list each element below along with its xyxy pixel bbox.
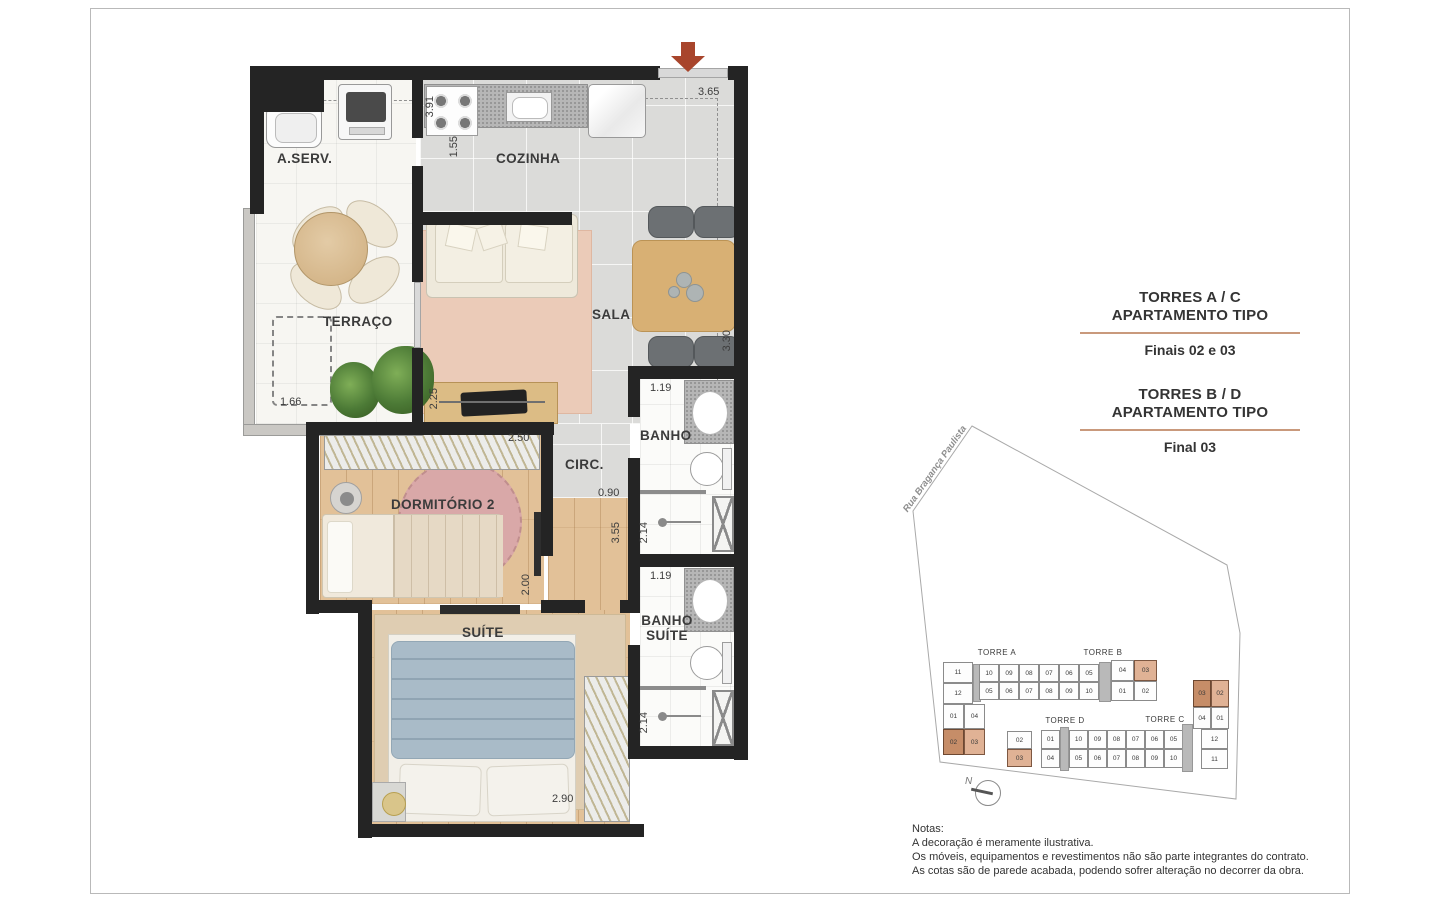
torre-c-highlight-units: 0302 <box>1193 680 1229 707</box>
terrace-railing <box>243 208 255 436</box>
notes-block: Notas: A decoração é meramente ilustrati… <box>912 822 1332 878</box>
site-unit-08: 08 <box>1126 749 1145 768</box>
wall <box>412 80 423 138</box>
notes-line: As cotas são de parede acabada, podendo … <box>912 864 1332 878</box>
title-torres-bd-line2: APARTAMENTO TIPO <box>1070 404 1310 422</box>
site-unit-11: 11 <box>1201 749 1228 769</box>
single-bed <box>322 514 502 598</box>
label-banho-suite: BANHO SUÍTE <box>638 613 696 643</box>
site-unit-05: 05 <box>1069 749 1088 768</box>
subtitle-final-03: Final 03 <box>1070 439 1310 455</box>
wall <box>628 379 640 417</box>
site-unit-04: 04 <box>1041 749 1060 768</box>
torre-a-highlight-units: 0203 <box>943 729 985 755</box>
label-suite: SUÍTE <box>462 625 504 640</box>
half-wall <box>640 490 706 494</box>
site-unit-06: 06 <box>1145 730 1164 749</box>
bedroom2-tv <box>534 512 541 576</box>
site-unit-03: 03 <box>1134 660 1157 681</box>
torre-d-label: TORRE D <box>1025 716 1105 725</box>
wall-shaft <box>250 66 324 112</box>
site-unit-08: 08 <box>1019 664 1039 682</box>
washing-machine <box>338 84 392 140</box>
wall <box>358 600 372 838</box>
wall <box>628 567 640 601</box>
torre-b-end-units: 0102 <box>1111 681 1157 701</box>
label-dormitorio2: DORMITÓRIO 2 <box>391 497 495 512</box>
notes-title: Notas: <box>912 822 1332 836</box>
torre-a-label: TORRE A <box>957 648 1037 657</box>
label-circ: CIRC. <box>565 457 604 472</box>
shower-arm <box>665 521 701 523</box>
site-unit-02: 02 <box>1211 680 1229 707</box>
site-unit-09: 09 <box>1145 749 1164 768</box>
suite-stool <box>382 792 406 816</box>
title-torres-bd-line1: TORRES B / D <box>1070 386 1310 404</box>
notes-line: A decoração é meramente ilustrativa. <box>912 836 1332 850</box>
tv-sideboard <box>424 382 558 424</box>
site-unit-09: 09 <box>999 664 1019 682</box>
double-bed <box>388 634 576 822</box>
site-unit-12: 12 <box>943 683 973 704</box>
label-banho: BANHO <box>640 428 692 443</box>
dim-sideboard: 2.25 <box>428 388 440 409</box>
wall <box>412 212 572 225</box>
title-torres-ac-line1: TORRES A / C <box>1070 289 1310 307</box>
dim-bsuite-shower: 2.14 <box>638 712 650 733</box>
torre-c-wing-units: 0401 <box>1193 707 1229 729</box>
torre-ab-bottom-units: 050607080910 <box>979 682 1099 700</box>
dim-bsuite-w: 1.19 <box>650 570 671 582</box>
plate <box>686 284 704 302</box>
shower-arm <box>665 715 701 717</box>
terrace-table <box>294 212 368 286</box>
dim-hall-h: 3.55 <box>610 522 622 543</box>
wall <box>628 746 748 759</box>
wall <box>628 554 748 567</box>
dim-banho-shower: 2.14 <box>638 522 650 543</box>
plate <box>668 286 680 298</box>
site-unit-04: 04 <box>964 704 985 729</box>
notes-line: Os móveis, equipamentos e revestimentos … <box>912 850 1332 864</box>
title-divider <box>1080 332 1300 334</box>
dining-chair <box>648 206 694 238</box>
subtitle-finais-02-03: Finais 02 e 03 <box>1070 342 1310 358</box>
title-divider <box>1080 429 1300 431</box>
north-label: N <box>965 776 972 787</box>
site-unit-08: 08 <box>1039 682 1059 700</box>
site-unit-01: 01 <box>943 704 964 729</box>
dim-dorm2-w: 2.50 <box>508 432 529 444</box>
dim-suite-w: 2.90 <box>552 793 573 805</box>
site-unit-06: 06 <box>1088 749 1107 768</box>
spacer <box>1070 358 1310 386</box>
dim-dorm2-h: 2.00 <box>520 574 532 595</box>
plant <box>372 346 434 414</box>
fridge <box>588 84 646 138</box>
label-cozinha: COZINHA <box>496 151 560 166</box>
site-unit-01: 01 <box>1041 730 1060 749</box>
dim-coz-left: 1.55 <box>448 136 460 157</box>
brochure-page: A.SERV. COZINHA TERRAÇO SALA BANHO CIRC.… <box>0 0 1440 900</box>
wall <box>306 422 319 614</box>
suite-wardrobe <box>584 676 630 822</box>
kitchen-sink <box>506 92 552 122</box>
torre-b-end-units: 0403 <box>1111 660 1157 681</box>
site-unit-10: 10 <box>979 664 999 682</box>
wall <box>620 600 640 613</box>
suite-tv <box>440 605 520 614</box>
dim-banho-w: 1.19 <box>650 382 671 394</box>
entrance-arrow <box>681 42 695 57</box>
entrance-arrow-head <box>671 56 705 72</box>
site-plan: Rua Bragança Paulista TORRE A TORRE B 11… <box>895 412 1275 812</box>
wall <box>541 600 585 613</box>
site-unit-06: 06 <box>1059 664 1079 682</box>
dim-circ-w: 0.90 <box>598 487 619 499</box>
torre-b-label: TORRE B <box>1063 648 1143 657</box>
nightstand <box>330 482 362 514</box>
site-unit-03: 03 <box>1193 680 1211 707</box>
site-unit-07: 07 <box>1019 682 1039 700</box>
dim-coz-top: 3.65 <box>698 86 719 98</box>
site-unit-09: 09 <box>1059 682 1079 700</box>
toilet <box>690 452 724 486</box>
info-panel: TORRES A / C APARTAMENTO TIPO Finais 02 … <box>1070 289 1310 455</box>
site-unit-04: 04 <box>1111 660 1134 681</box>
site-unit-05: 05 <box>979 682 999 700</box>
building-core <box>1099 662 1111 702</box>
torre-d-end-units: 0203 <box>1007 731 1032 767</box>
label-banho-suite-l2: SUÍTE <box>646 628 688 643</box>
shower-door <box>712 496 734 552</box>
site-unit-07: 07 <box>1039 664 1059 682</box>
site-unit-10: 10 <box>1069 730 1088 749</box>
site-unit-02: 02 <box>1007 731 1032 749</box>
dim-terraco-w: 1.66 <box>280 396 301 408</box>
toilet-tank <box>722 448 732 490</box>
dim-sala-right: 3.30 <box>721 330 733 351</box>
wall <box>628 645 640 758</box>
site-unit-01: 01 <box>1111 681 1134 701</box>
site-unit-05: 05 <box>1079 664 1099 682</box>
site-unit-03: 03 <box>964 729 985 755</box>
site-unit-10: 10 <box>1164 749 1183 768</box>
site-unit-09: 09 <box>1088 730 1107 749</box>
site-unit-02: 02 <box>1134 681 1157 701</box>
site-unit-04: 04 <box>1193 707 1211 729</box>
dim-aserv-h: 3.91 <box>424 96 436 117</box>
building-core <box>1060 727 1069 771</box>
label-aserv: A.SERV. <box>277 151 332 166</box>
site-unit-11: 11 <box>943 662 973 683</box>
wall <box>358 824 644 837</box>
building-core <box>1182 724 1193 772</box>
toilet <box>690 646 724 680</box>
site-unit-02: 02 <box>943 729 964 755</box>
wall <box>412 348 423 426</box>
site-unit-12: 12 <box>1201 729 1228 749</box>
label-terraco: TERRAÇO <box>323 314 393 329</box>
toilet-tank <box>722 642 732 684</box>
label-sala: SALA <box>592 307 630 322</box>
wall <box>734 66 748 760</box>
wall <box>541 422 553 556</box>
site-unit-07: 07 <box>1126 730 1145 749</box>
torre-ab-top-units: 100908070605 <box>979 664 1099 682</box>
wall <box>628 366 748 379</box>
torre-a-wing-units: 0104 <box>943 704 985 729</box>
sofa <box>426 214 578 298</box>
shower-door <box>712 690 734 746</box>
label-banho-suite-l1: BANHO <box>641 613 693 628</box>
site-unit-05: 05 <box>1164 730 1183 749</box>
terrace-sliding-door <box>414 282 421 348</box>
site-unit-03: 03 <box>1007 749 1032 767</box>
site-unit-08: 08 <box>1107 730 1126 749</box>
bath-counter <box>684 380 734 444</box>
floor-hall <box>548 498 628 612</box>
half-wall <box>640 686 706 690</box>
dining-chair <box>648 336 694 368</box>
torre-c-wing-units: 1211 <box>1201 729 1228 769</box>
optional-area-outline <box>272 316 332 406</box>
site-unit-07: 07 <box>1107 749 1126 768</box>
torre-a-wing-units: 1112 <box>943 662 973 704</box>
site-unit-10: 10 <box>1079 682 1099 700</box>
title-torres-ac-line2: APARTAMENTO TIPO <box>1070 307 1310 325</box>
site-unit-01: 01 <box>1211 707 1229 729</box>
site-unit-06: 06 <box>999 682 1019 700</box>
